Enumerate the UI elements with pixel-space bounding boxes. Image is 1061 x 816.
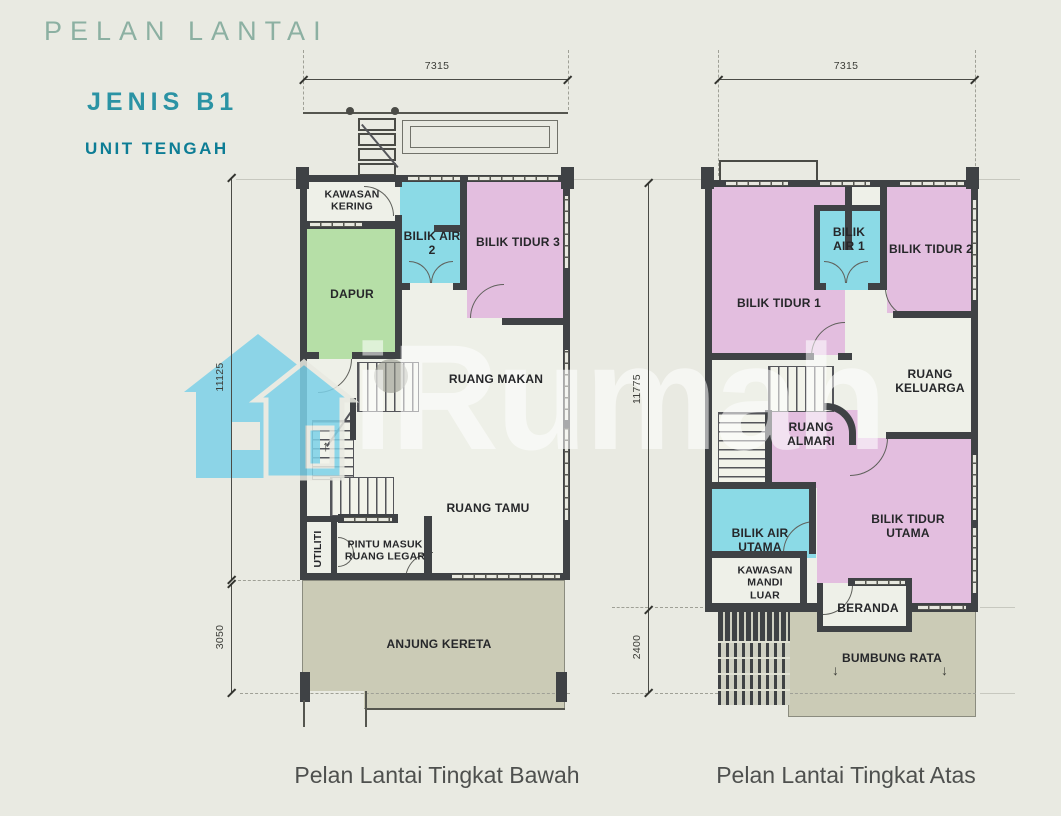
label-ruang-tamu: RUANG TAMU — [446, 501, 529, 515]
grid-line — [570, 179, 705, 180]
dimension-porch-gf: 3050 — [214, 615, 226, 659]
wall — [460, 175, 467, 290]
extension-line — [655, 693, 718, 694]
dimension-height-gf: 11125 — [214, 355, 226, 399]
roof-slope-arrow: ↓ — [832, 662, 839, 678]
label-bilik-air-1: BILIK AIR 1 — [833, 225, 865, 253]
window — [408, 176, 460, 181]
label-dapur: DAPUR — [330, 287, 374, 301]
extension-line — [975, 50, 976, 176]
rear-planter — [410, 126, 550, 148]
caption-ground-floor: Pelan Lantai Tingkat Bawah — [294, 762, 579, 789]
dimension-height-uf: 11775 — [631, 367, 643, 411]
dimension-line — [231, 177, 232, 580]
wall — [814, 283, 826, 290]
label-bumbung-rata: BUMBUNG RATA — [842, 651, 942, 665]
label-bilik-tidur-2: BILIK TIDUR 2 — [889, 242, 973, 256]
window — [972, 455, 977, 520]
extension-line — [612, 607, 648, 608]
pergola-slats — [718, 607, 790, 641]
corner-pillar — [701, 167, 714, 189]
caption-upper-floor: Pelan Lantai Tingkat Atas — [716, 762, 976, 789]
wall — [800, 551, 807, 612]
corner-pillar — [966, 167, 979, 189]
irumah-watermark: iRumah — [352, 322, 884, 472]
wall — [400, 283, 410, 290]
window — [310, 222, 362, 227]
unit-type-label: JENIS B1 — [87, 88, 238, 117]
label-ruang-legar: PINTU MASUK RUANG LEGAR — [345, 539, 425, 564]
wall — [817, 626, 912, 632]
driveway-line — [303, 700, 305, 727]
window — [344, 517, 392, 522]
wall — [809, 482, 816, 554]
driveway-line — [365, 708, 565, 710]
floor-plan-sheet: PELAN LANTAI JENIS B1 UNIT TENGAH 7315 — [0, 0, 1061, 816]
window — [468, 176, 558, 181]
window — [900, 181, 964, 186]
fence-post — [391, 107, 399, 115]
wall — [880, 187, 887, 290]
window — [726, 181, 788, 186]
wall — [886, 432, 971, 439]
label-anjung-kereta: ANJUNG KERETA — [386, 637, 491, 651]
label-ruang-almari: RUANG ALMARI — [787, 420, 835, 448]
label-bilik-air-2: BILIK AIR 2 — [404, 229, 461, 257]
dimension-line — [648, 182, 649, 610]
wall — [395, 175, 402, 187]
label-bilik-tidur-1: BILIK TIDUR 1 — [737, 296, 821, 310]
wall — [893, 311, 971, 318]
dimension-width-uf: 7315 — [834, 60, 859, 72]
dimension-line — [718, 79, 975, 80]
grid-line — [236, 179, 300, 180]
gate-post — [556, 672, 567, 702]
label-kawasan-kering: KAWASAN KERING — [324, 189, 379, 214]
wall — [817, 583, 823, 632]
corner-pillar — [296, 167, 309, 189]
rear-awning — [719, 160, 818, 182]
setback-dash — [790, 693, 976, 694]
label-ruang-makan: RUANG MAKAN — [449, 372, 543, 386]
unit-position-label: UNIT TENGAH — [85, 139, 229, 159]
pergola-slats — [718, 641, 790, 705]
extension-line — [718, 50, 719, 176]
label-beranda: BERANDA — [837, 601, 898, 615]
window — [820, 181, 870, 186]
wall — [424, 516, 432, 580]
extension-line — [238, 580, 300, 581]
label-bilik-air-utama: BILIK AIR UTAMA — [732, 526, 789, 554]
corner-pillar — [561, 167, 574, 189]
label-ruang-keluarga: RUANG KELUARGA — [895, 367, 965, 395]
page-title: PELAN LANTAI — [44, 16, 329, 47]
grid-line — [980, 693, 1015, 694]
rear-fence-line — [303, 112, 568, 114]
dimension-porch-uf: 2400 — [631, 625, 643, 669]
wall — [331, 516, 337, 576]
wall — [868, 283, 887, 290]
wall — [453, 283, 467, 290]
window — [564, 196, 569, 268]
wall — [814, 205, 880, 211]
dimension-line — [648, 610, 649, 693]
window — [918, 605, 966, 610]
extension-line — [612, 693, 648, 694]
grid-line — [980, 607, 1015, 608]
irumah-logo-houses-icon — [180, 330, 360, 485]
label-kawasan-mandi-luar: KAWASAN MANDI LUAR — [737, 564, 792, 601]
grid-line — [978, 179, 1020, 180]
label-bilik-tidur-3: BILIK TIDUR 3 — [476, 235, 560, 249]
fence-post — [346, 107, 354, 115]
roof-slope-arrow: ↓ — [941, 662, 948, 678]
setback-dash — [240, 693, 570, 694]
gate-post — [300, 672, 310, 702]
wall — [814, 205, 820, 290]
window — [972, 528, 977, 593]
wall — [712, 482, 816, 489]
window — [855, 580, 905, 585]
label-bilik-tidur-utama: BILIK TIDUR UTAMA — [871, 512, 945, 540]
dimension-width-gf: 7315 — [425, 60, 450, 72]
window — [452, 574, 560, 579]
dimension-line — [303, 79, 568, 80]
label-utiliti: UTILITI — [312, 531, 324, 568]
dimension-line — [231, 583, 232, 693]
wall — [906, 583, 912, 632]
